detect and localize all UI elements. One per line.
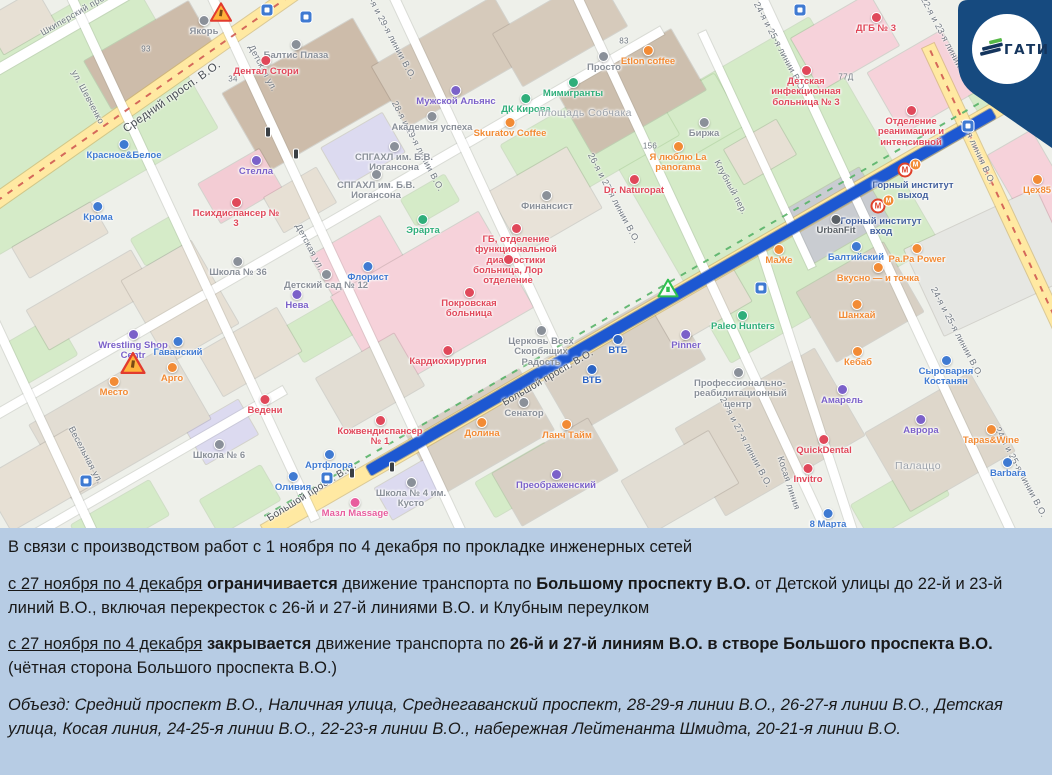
- bus-stop-icon[interactable]: [301, 12, 312, 23]
- poi-label-text: Психдиспансер № 3: [192, 209, 280, 230]
- poi-dot-icon[interactable]: [323, 449, 334, 460]
- poi-label-text: Покровская больница: [425, 299, 513, 320]
- poi-dot-icon[interactable]: [643, 45, 654, 56]
- poi-label-text: Отделение реанимации и интенсивной: [867, 117, 955, 148]
- poi-label-text: ВТБ: [608, 346, 627, 356]
- poi-label[interactable]: Ведени: [247, 394, 282, 416]
- poi-label[interactable]: Отделение реанимации и интенсивной: [867, 105, 955, 148]
- poi-dot-icon[interactable]: [450, 85, 461, 96]
- poi-dot-icon[interactable]: [536, 325, 547, 336]
- poi-label[interactable]: Etlon coffee: [621, 45, 675, 67]
- poi-dot-icon[interactable]: [199, 15, 210, 26]
- poi-dot-icon[interactable]: [93, 201, 104, 212]
- poi-label[interactable]: Оливия: [275, 471, 311, 493]
- poi-label[interactable]: Гаванский: [154, 336, 203, 358]
- poi-label[interactable]: ВТБ: [608, 334, 627, 356]
- poi-dot-icon[interactable]: [418, 214, 429, 225]
- poi-label-text: Сенатор: [504, 409, 543, 419]
- poi-label-text: Академия успеха: [392, 123, 473, 133]
- poi-dot-icon[interactable]: [629, 174, 640, 185]
- poi-label-text: Эрарта: [406, 226, 439, 236]
- poi-dot-icon[interactable]: [774, 244, 785, 255]
- poi-label-text: Амарель: [821, 396, 863, 406]
- poi-dot-icon[interactable]: [852, 346, 863, 357]
- poi-label-text: Вкусно — и точка: [837, 274, 919, 284]
- notice-text-segment: движение транспорта по: [311, 635, 510, 653]
- poi-dot-icon[interactable]: [612, 334, 623, 345]
- poi-label[interactable]: Pinner: [671, 329, 701, 351]
- poi-label[interactable]: Просто: [587, 51, 621, 73]
- poi-label-text: Финансист: [521, 202, 573, 212]
- poi-label-text: больница, Лор отделение: [464, 266, 552, 287]
- poi-dot-icon[interactable]: [173, 336, 184, 347]
- poi-dot-icon[interactable]: [476, 417, 487, 428]
- poi-label-text: Артфлора: [305, 461, 353, 471]
- poi-dot-icon[interactable]: [231, 197, 242, 208]
- bus-stop-icon[interactable]: [81, 476, 92, 487]
- poi-label[interactable]: Психдиспансер № 3: [192, 197, 280, 230]
- poi-label-text: Аврора: [903, 426, 938, 436]
- poi-label[interactable]: Я люблю La panorama: [634, 141, 722, 174]
- poi-dot-icon[interactable]: [831, 214, 842, 225]
- poi-dot-icon[interactable]: [371, 169, 382, 180]
- notice-text-segment: движение транспорта по: [338, 575, 537, 593]
- traffic-light-icon[interactable]: [294, 150, 298, 159]
- poi-label-text: Pinner: [671, 341, 701, 351]
- poi-label-text: Биржа: [689, 129, 719, 139]
- poi-label[interactable]: Аврора: [903, 414, 938, 436]
- poi-label[interactable]: Дентал Стори: [233, 55, 298, 77]
- poi-dot-icon[interactable]: [260, 55, 271, 66]
- poi-label-text: Флорист: [347, 273, 388, 283]
- poi-label-text: СПГАХЛ им. Б.В. Иогансона: [332, 181, 420, 202]
- poi-label[interactable]: Skuratov Coffee: [474, 117, 547, 139]
- poi-dot-icon[interactable]: [819, 434, 830, 445]
- screenshot: ЯкорьБалтис ПлазаДентал СториКрасное&Бел…: [0, 0, 1052, 775]
- poi-label-text: Сыроварня Костанян: [902, 367, 990, 388]
- poi-label-text: Tapas&Wine: [963, 436, 1019, 446]
- poi-label-text: Арго: [161, 374, 183, 384]
- poi-label-text: Профессионально-реабилитационный центр: [694, 379, 782, 410]
- poi-dot-icon[interactable]: [128, 329, 139, 340]
- notice-paragraph-1: В связи с производством работ с 1 ноября…: [8, 536, 1038, 560]
- poi-label[interactable]: Крома: [83, 201, 112, 223]
- poi-label[interactable]: ДГБ № 3: [856, 12, 896, 34]
- poi-dot-icon[interactable]: [350, 497, 361, 508]
- poi-label-text: Место: [100, 388, 129, 398]
- poi-label-text: Церковь Всех Скорбящих Радость: [497, 337, 585, 368]
- poi-label-text: Детская инфекционная больница № 3: [762, 77, 850, 108]
- poi-label[interactable]: площадь Собчака: [538, 108, 632, 120]
- poi-label[interactable]: Сыроварня Костанян: [902, 355, 990, 388]
- poi-label-text: Я люблю La panorama: [634, 153, 722, 174]
- poi-dot-icon[interactable]: [912, 243, 923, 254]
- poi-label-text: Ведени: [247, 406, 282, 416]
- warning-triangle-icon[interactable]: [121, 351, 146, 381]
- poi-label-text: Мимигранты: [543, 89, 603, 99]
- poi-dot-icon[interactable]: [520, 93, 531, 104]
- poi-label[interactable]: Биржа: [689, 117, 719, 139]
- poi-label-text: Оливия: [275, 483, 311, 493]
- poi-label[interactable]: Кардиохирургия: [409, 345, 486, 367]
- poi-dot-icon[interactable]: [873, 262, 884, 273]
- gati-logo-badge: ГАТИ: [958, 0, 1052, 150]
- street-label: 93: [141, 45, 151, 54]
- poi-label[interactable]: Церковь Всех Скорбящих Радость: [497, 325, 585, 368]
- poi-label-text: Стелла: [239, 167, 273, 177]
- poi-dot-icon[interactable]: [464, 287, 475, 298]
- poi-label[interactable]: СПГАХЛ им. Б.В. Иогансона: [332, 169, 420, 202]
- poi-label[interactable]: Dr. Naturopat: [604, 174, 664, 196]
- notice-paragraph-3: с 27 ноября по 4 декабря закрывается дви…: [8, 633, 1038, 681]
- poi-label[interactable]: Школа № 4 им. Кусто: [367, 477, 455, 510]
- notice-text-segment: 26-й и 27-й линиям В.О. в створе Большог…: [510, 635, 993, 653]
- traffic-light-icon[interactable]: [350, 469, 354, 478]
- poi-label-text: Преображенский: [516, 481, 596, 491]
- notice-text-segment: с 27 ноября по 4 декабря: [8, 575, 202, 593]
- poi-label-text: Школа № 36: [209, 268, 267, 278]
- traffic-light-icon[interactable]: [266, 128, 270, 137]
- poi-label-text: Мазл Massage: [322, 509, 389, 519]
- poi-label[interactable]: Красное&Белое: [87, 139, 162, 161]
- poi-dot-icon[interactable]: [801, 65, 812, 76]
- bus-stop-icon[interactable]: [756, 283, 767, 294]
- poi-label-text: Ланч Тайм: [542, 431, 592, 441]
- traffic-light-icon[interactable]: [390, 463, 394, 472]
- poi-dot-icon[interactable]: [214, 439, 225, 450]
- poi-dot-icon[interactable]: [567, 77, 578, 88]
- poi-dot-icon[interactable]: [167, 362, 178, 373]
- poi-label-text: Barbara: [990, 469, 1026, 479]
- poi-label-text: Гаванский: [154, 348, 203, 358]
- poi-label[interactable]: 8 Марта: [810, 508, 847, 528]
- poi-dot-icon[interactable]: [916, 414, 927, 425]
- poi-label[interactable]: Палаццо: [895, 461, 941, 473]
- notice-paragraph-4: Объезд: Средний проспект В.О., Наличная …: [8, 694, 1038, 742]
- poi-label[interactable]: Цех85: [1023, 174, 1051, 196]
- poi-label[interactable]: Флорист: [347, 261, 388, 283]
- poi-label[interactable]: Детская инфекционная больница № 3: [762, 65, 850, 108]
- poi-dot-icon[interactable]: [119, 139, 130, 150]
- poi-dot-icon[interactable]: [851, 299, 862, 310]
- poi-dot-icon[interactable]: [389, 141, 400, 152]
- poi-label[interactable]: Шанхай: [839, 299, 876, 321]
- gati-logo-text: ГАТИ: [1004, 42, 1050, 58]
- notice-text-segment: (чётная сторона Большого проспекта В.О.): [8, 659, 337, 677]
- poi-label-text: Просто: [587, 63, 621, 73]
- poi-dot-icon[interactable]: [836, 384, 847, 395]
- poi-label[interactable]: Школа № 6: [193, 439, 245, 461]
- poi-label[interactable]: Арго: [161, 362, 183, 384]
- poi-label-text: Палаццо: [895, 461, 941, 473]
- poi-label[interactable]: Barbara: [990, 457, 1026, 479]
- poi-dot-icon[interactable]: [259, 394, 270, 405]
- poi-dot-icon[interactable]: [737, 310, 748, 321]
- notice-text-segment: Объезд: Средний проспект В.О., Наличная …: [8, 696, 1003, 738]
- poi-dot-icon[interactable]: [503, 254, 514, 265]
- poi-label[interactable]: Школа № 36: [209, 256, 267, 278]
- poi-dot-icon[interactable]: [1031, 174, 1042, 185]
- poi-label-text: Якорь: [190, 27, 219, 37]
- poi-label-text: 8 Марта: [810, 520, 847, 528]
- poi-label[interactable]: больница, Лор отделение: [464, 254, 552, 287]
- poi-label-text: Школа № 6: [193, 451, 245, 461]
- poi-dot-icon[interactable]: [586, 364, 597, 375]
- poi-label[interactable]: Профессионально-реабилитационный центр: [694, 367, 782, 410]
- poi-label-text: UrbanFit: [816, 226, 855, 236]
- poi-label-text: площадь Собчака: [538, 108, 632, 120]
- notice-text-segment: В связи с производством работ с 1 ноября…: [8, 538, 692, 556]
- poi-label-text: Дентал Стори: [233, 67, 298, 77]
- bus-stop-icon[interactable]: [795, 5, 806, 16]
- metro-icon[interactable]: ММ: [898, 163, 913, 178]
- poi-dot-icon[interactable]: [251, 155, 262, 166]
- poi-dot-icon[interactable]: [233, 256, 244, 267]
- poi-label-text: Кардиохирургия: [409, 357, 486, 367]
- map[interactable]: ЯкорьБалтис ПлазаДентал СториКрасное&Бел…: [0, 0, 1052, 528]
- poi-dot-icon[interactable]: [906, 105, 917, 116]
- poi-label[interactable]: UrbanFit: [816, 214, 855, 236]
- poi-label-text: Нева: [285, 301, 308, 311]
- metro-icon[interactable]: ММ: [871, 199, 886, 214]
- poi-dot-icon[interactable]: [698, 117, 709, 128]
- poi-dot-icon[interactable]: [1002, 457, 1013, 468]
- poi-label[interactable]: ВТБ: [582, 364, 601, 386]
- poi-label-text: Долина: [464, 429, 499, 439]
- poi-label-text: QuickDental: [796, 446, 851, 456]
- poi-label-text: ВТБ: [582, 376, 601, 386]
- poi-dot-icon[interactable]: [320, 269, 331, 280]
- poi-label[interactable]: Финансист: [521, 190, 573, 212]
- poi-dot-icon[interactable]: [375, 415, 386, 426]
- poi-label[interactable]: МаЖе: [765, 244, 792, 266]
- poi-label-text: Цех85: [1023, 186, 1051, 196]
- poi-dot-icon[interactable]: [561, 419, 572, 430]
- poi-label[interactable]: Покровская больница: [425, 287, 513, 320]
- poi-dot-icon[interactable]: [504, 117, 515, 128]
- poi-dot-icon[interactable]: [985, 424, 996, 435]
- poi-label[interactable]: Invitro: [793, 463, 822, 485]
- poi-label[interactable]: Артфлора: [305, 449, 353, 471]
- poi-label[interactable]: Балтийский: [828, 241, 884, 263]
- poi-dot-icon[interactable]: [551, 469, 562, 480]
- notice-text-segment: Большому проспекту В.О.: [536, 575, 750, 593]
- poi-label[interactable]: QuickDental: [796, 434, 851, 456]
- bus-stop-icon[interactable]: [322, 473, 333, 484]
- poi-dot-icon[interactable]: [519, 397, 530, 408]
- roadworks-green-icon[interactable]: [658, 278, 679, 304]
- poi-label[interactable]: Мимигранты: [543, 77, 603, 99]
- poi-label[interactable]: Амарель: [821, 384, 863, 406]
- poi-dot-icon[interactable]: [406, 477, 417, 488]
- poi-dot-icon[interactable]: [681, 329, 692, 340]
- poi-label-text: Invitro: [793, 475, 822, 485]
- poi-label-text: Paleo Hunters: [711, 322, 775, 332]
- warning-triangle-icon[interactable]: [210, 2, 232, 29]
- poi-dot-icon[interactable]: [427, 111, 438, 122]
- poi-dot-icon[interactable]: [803, 463, 814, 474]
- poi-label-text: Мужской Альянс: [416, 97, 495, 107]
- bus-stop-icon[interactable]: [262, 5, 273, 16]
- poi-label-text: Школа № 4 им. Кусто: [367, 489, 455, 510]
- poi-label[interactable]: Преображенский: [516, 469, 596, 491]
- poi-dot-icon[interactable]: [822, 508, 833, 519]
- poi-label-text: МаЖе: [765, 256, 792, 266]
- notice-panel: В связи с производством работ с 1 ноября…: [0, 528, 1052, 775]
- poi-label-text: Кебаб: [844, 358, 872, 368]
- poi-label[interactable]: Paleo Hunters: [711, 310, 775, 332]
- poi-dot-icon[interactable]: [291, 39, 302, 50]
- poi-dot-icon[interactable]: [870, 12, 881, 23]
- notice-text-segment: с 27 ноября по 4 декабря: [8, 635, 202, 653]
- poi-dot-icon[interactable]: [850, 241, 861, 252]
- poi-label-text: Skuratov Coffee: [474, 129, 547, 139]
- poi-label-text: ДГБ № 3: [856, 24, 896, 34]
- poi-dot-icon[interactable]: [599, 51, 610, 62]
- poi-dot-icon[interactable]: [673, 141, 684, 152]
- poi-label-text: Etlon coffee: [621, 57, 675, 67]
- notice-text-segment: закрывается: [207, 635, 311, 653]
- poi-label-text: Dr. Naturopat: [604, 186, 664, 196]
- poi-label[interactable]: Кебаб: [844, 346, 872, 368]
- poi-label[interactable]: Нева: [285, 289, 308, 311]
- poi-dot-icon[interactable]: [542, 190, 553, 201]
- poi-label[interactable]: Эрарта: [406, 214, 439, 236]
- poi-dot-icon[interactable]: [109, 376, 120, 387]
- poi-label-text: Кожвендиспансер № 1: [336, 427, 424, 448]
- poi-label-text: Крома: [83, 213, 112, 223]
- poi-label[interactable]: Вкусно — и точка: [837, 262, 919, 284]
- poi-dot-icon[interactable]: [511, 223, 522, 234]
- notice-paragraphs: В связи с производством работ с 1 ноября…: [8, 536, 1038, 741]
- poi-dot-icon[interactable]: [733, 367, 744, 378]
- poi-dot-icon[interactable]: [941, 355, 952, 366]
- poi-label-text: Шанхай: [839, 311, 876, 321]
- poi-label[interactable]: Ланч Тайм: [542, 419, 592, 441]
- poi-dot-icon[interactable]: [443, 345, 454, 356]
- notice-text-segment: ограничивается: [207, 575, 338, 593]
- notice-paragraph-2: с 27 ноября по 4 декабря ограничивается …: [8, 573, 1038, 621]
- poi-label[interactable]: Кожвендиспансер № 1: [336, 415, 424, 448]
- poi-label-text: Красное&Белое: [87, 151, 162, 161]
- poi-label[interactable]: Мужской Альянс: [416, 85, 495, 107]
- poi-dot-icon[interactable]: [362, 261, 373, 272]
- poi-label[interactable]: Долина: [464, 417, 499, 439]
- poi-label[interactable]: Сенатор: [504, 397, 543, 419]
- poi-label[interactable]: Стелла: [239, 155, 273, 177]
- poi-label[interactable]: Академия успеха: [392, 111, 473, 133]
- poi-dot-icon[interactable]: [288, 471, 299, 482]
- poi-label[interactable]: Tapas&Wine: [963, 424, 1019, 446]
